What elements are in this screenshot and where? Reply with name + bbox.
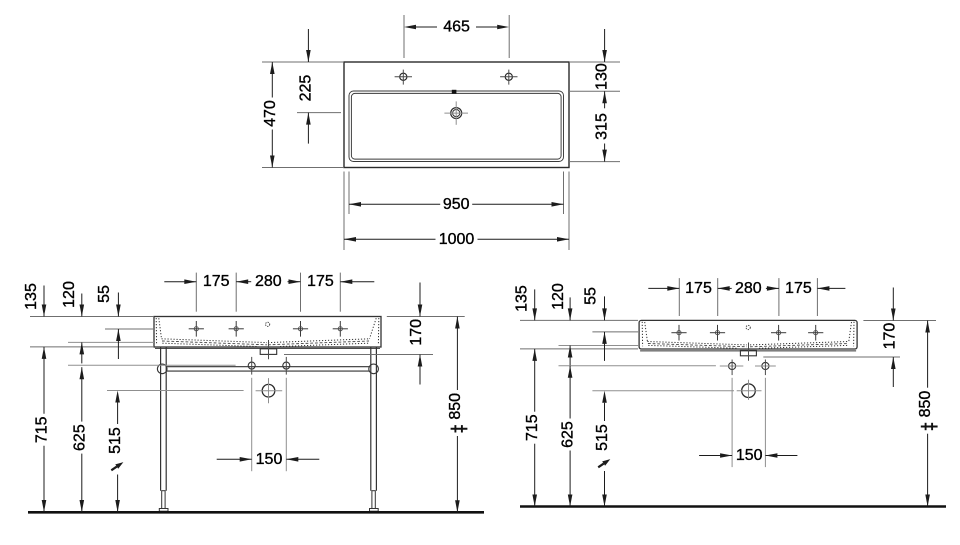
svg-text:225: 225 bbox=[298, 75, 315, 102]
svg-text:135: 135 bbox=[23, 283, 40, 310]
svg-text:175: 175 bbox=[203, 273, 230, 290]
svg-text:515: 515 bbox=[594, 424, 611, 451]
svg-text:135: 135 bbox=[513, 285, 530, 312]
svg-text:175: 175 bbox=[685, 280, 712, 297]
svg-text:170: 170 bbox=[408, 319, 425, 346]
svg-text:315: 315 bbox=[594, 113, 611, 140]
svg-text:465: 465 bbox=[443, 19, 470, 36]
svg-text:175: 175 bbox=[785, 280, 812, 297]
svg-text:55: 55 bbox=[583, 287, 600, 305]
svg-text:170: 170 bbox=[882, 323, 899, 350]
svg-text:850: 850 bbox=[917, 391, 934, 418]
svg-text:280: 280 bbox=[735, 280, 762, 297]
svg-text:120: 120 bbox=[550, 283, 567, 310]
svg-text:515: 515 bbox=[107, 427, 124, 454]
svg-text:130: 130 bbox=[594, 63, 611, 90]
svg-text:715: 715 bbox=[524, 414, 541, 441]
svg-text:950: 950 bbox=[443, 196, 470, 213]
svg-text:150: 150 bbox=[256, 451, 283, 468]
svg-text:55: 55 bbox=[96, 285, 113, 303]
svg-text:715: 715 bbox=[34, 416, 51, 443]
svg-text:120: 120 bbox=[61, 281, 78, 308]
svg-text:850: 850 bbox=[447, 393, 464, 420]
svg-text:150: 150 bbox=[736, 447, 763, 464]
svg-text:625: 625 bbox=[71, 424, 88, 451]
svg-text:470: 470 bbox=[262, 100, 279, 127]
svg-text:1000: 1000 bbox=[439, 231, 475, 248]
svg-text:175: 175 bbox=[307, 273, 334, 290]
svg-text:280: 280 bbox=[255, 273, 282, 290]
svg-text:625: 625 bbox=[560, 421, 577, 448]
